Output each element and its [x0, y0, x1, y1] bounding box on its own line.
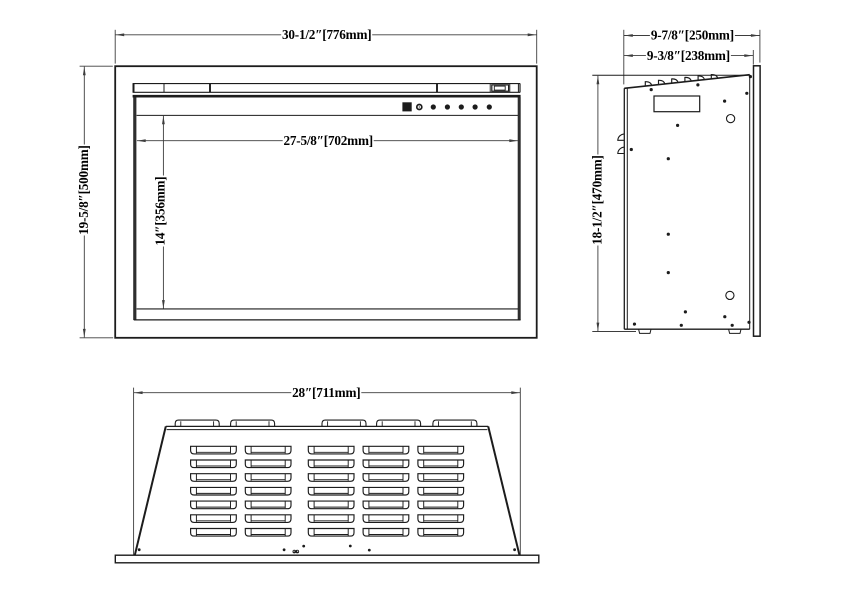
svg-text:9-3/8″[238mm]: 9-3/8″[238mm]: [647, 48, 730, 63]
svg-text:28″[711mm]: 28″[711mm]: [292, 385, 360, 400]
svg-text:30-1/2″[776mm]: 30-1/2″[776mm]: [282, 27, 371, 42]
svg-text:9-7/8″[250mm]: 9-7/8″[250mm]: [651, 28, 734, 43]
svg-text:19-5/8″[500mm]: 19-5/8″[500mm]: [76, 145, 91, 234]
svg-text:18-1/2″[470mm]: 18-1/2″[470mm]: [590, 155, 605, 244]
svg-text:14″[356mm]: 14″[356mm]: [153, 176, 168, 245]
svg-text:27-5/8″[702mm]: 27-5/8″[702mm]: [283, 133, 372, 148]
